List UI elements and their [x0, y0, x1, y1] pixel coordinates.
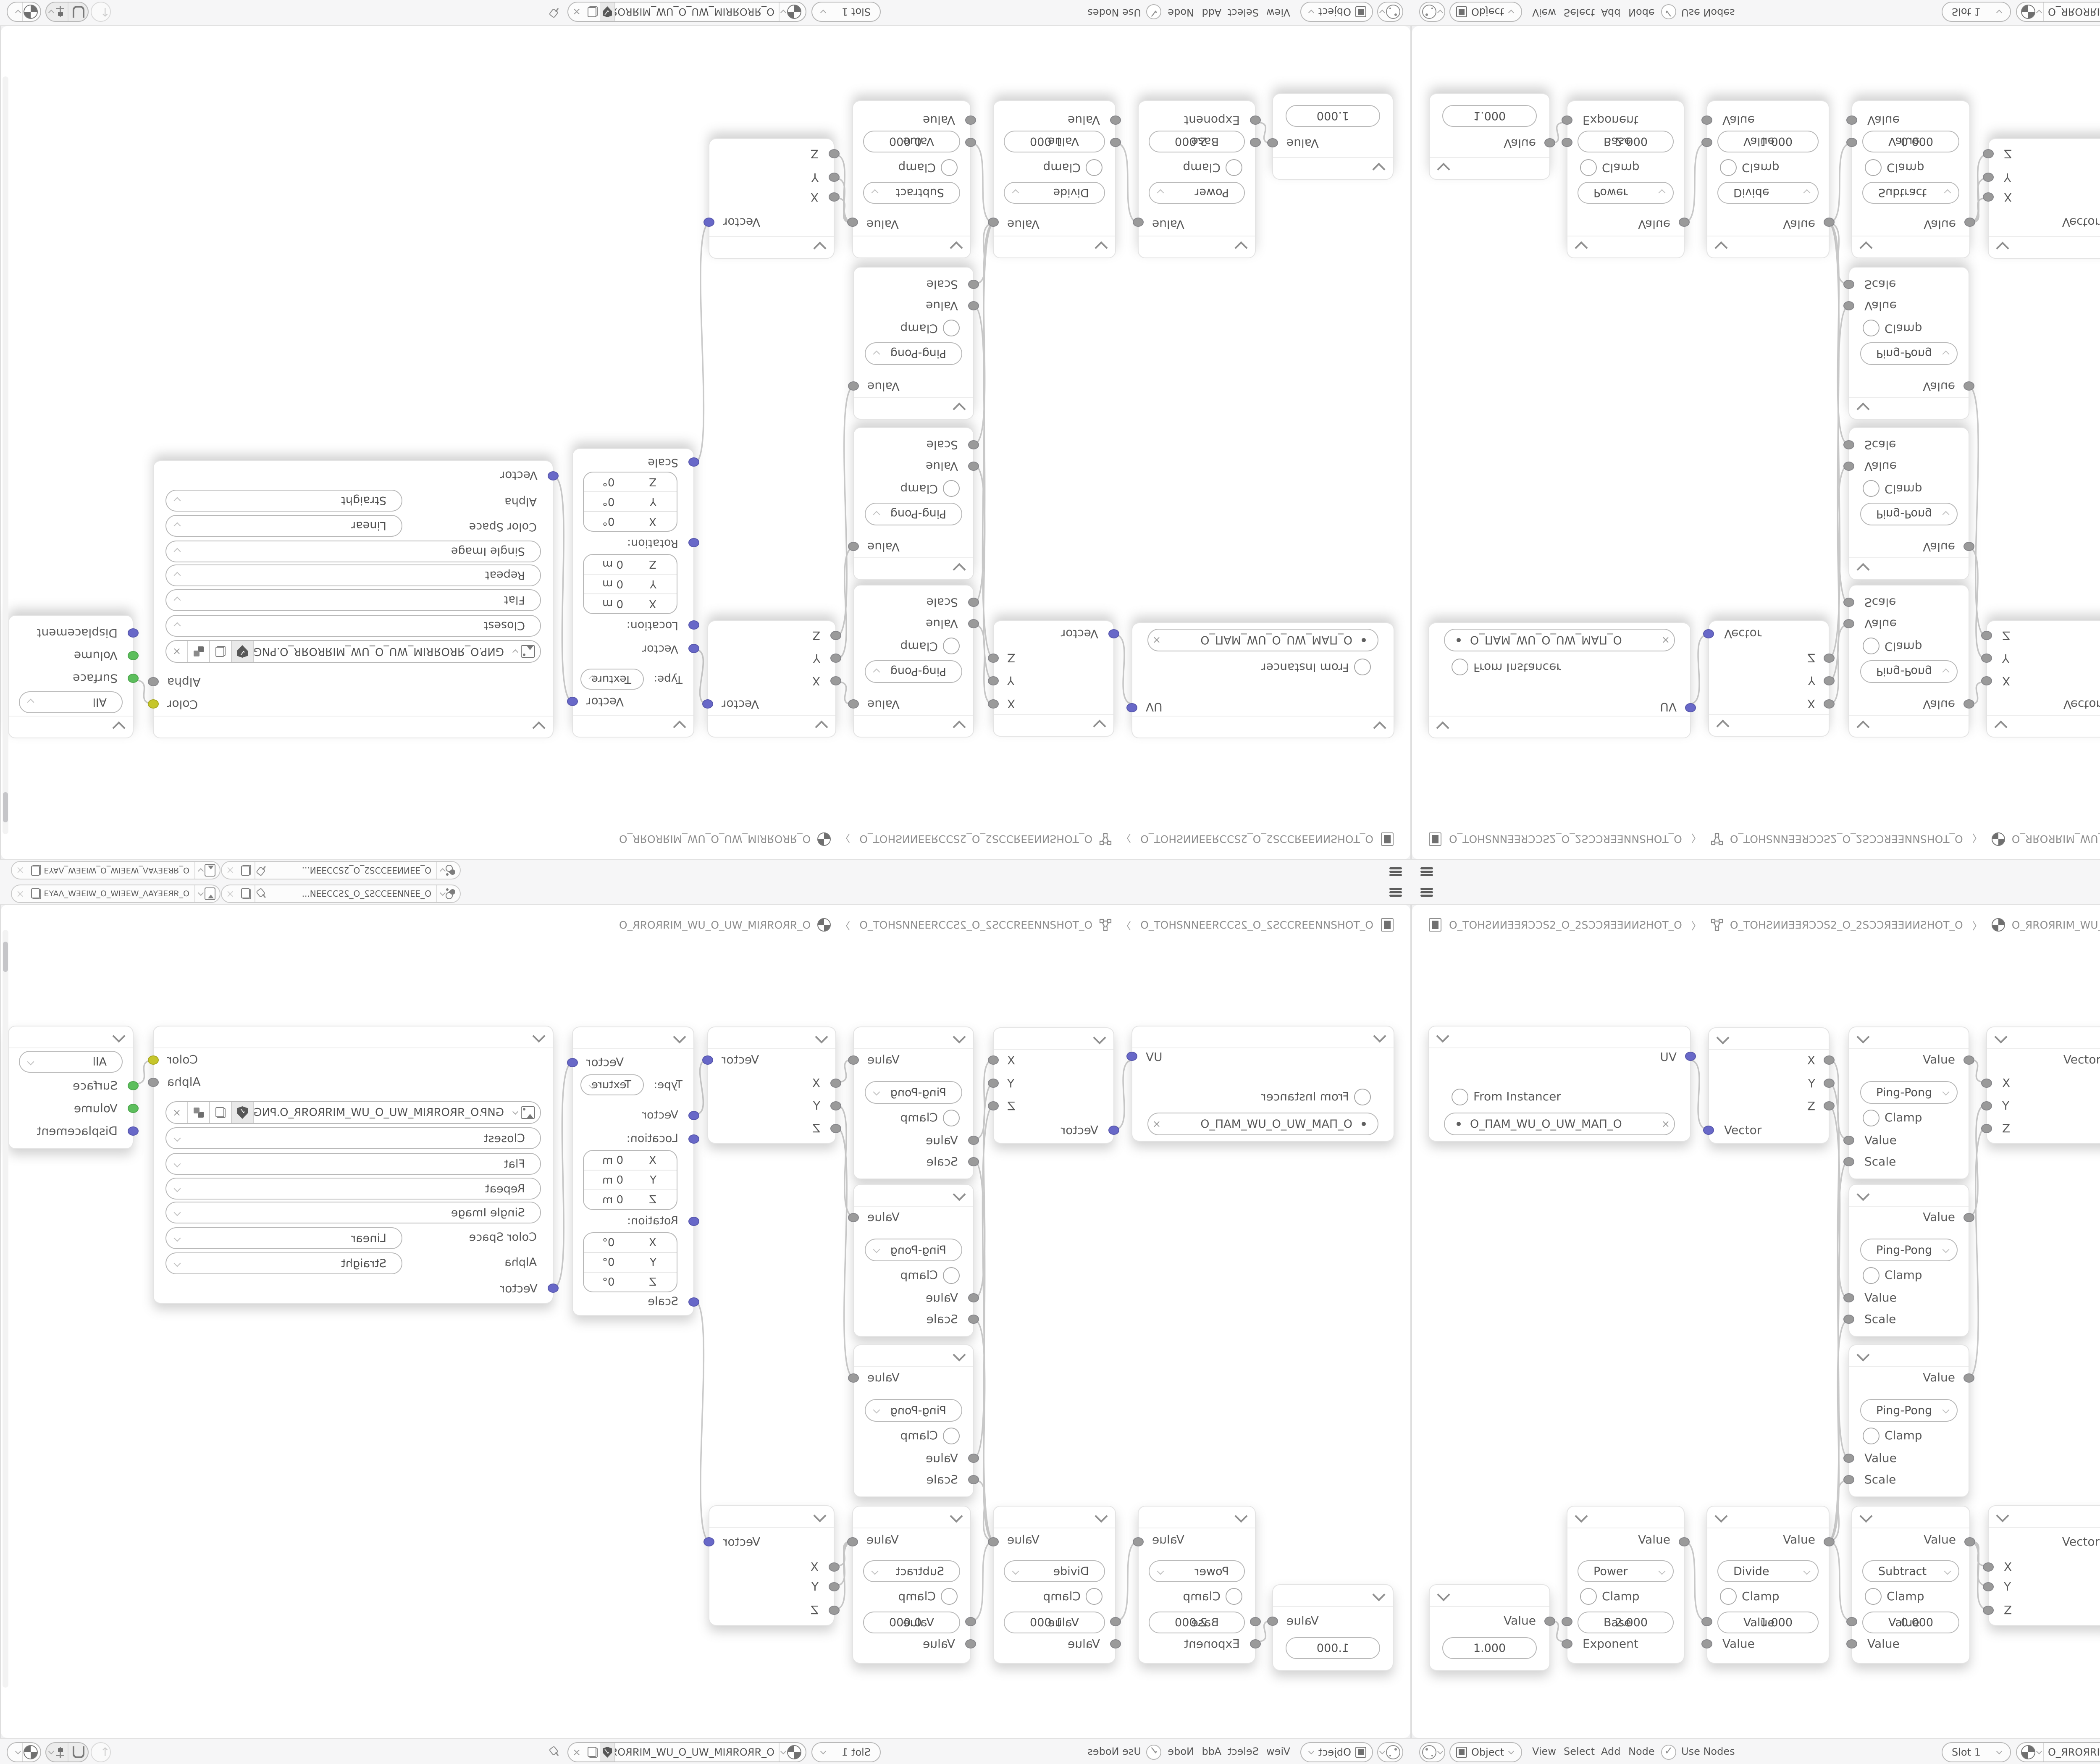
x-input-socket[interactable]: [829, 192, 840, 202]
math-subtract-node[interactable]: Value Subtract Clamp Value0.000 Value: [1851, 1506, 1970, 1664]
value-output-socket[interactable]: [848, 1373, 859, 1383]
menu-hamburger-icon[interactable]: [1420, 887, 1433, 899]
copy-icon[interactable]: [588, 6, 598, 17]
view-menu[interactable]: View: [1532, 3, 1556, 22]
rotation-fields[interactable]: X0° Y0° Z0°: [583, 472, 677, 532]
pin-icon[interactable]: [549, 0, 567, 19]
value-slider[interactable]: Value1.000: [1717, 131, 1819, 152]
math-pingpong-node-y[interactable]: Value Ping-Pong Clamp Value Scale: [853, 1184, 974, 1337]
value-input-socket[interactable]: [1110, 138, 1121, 147]
collapse-chevron-icon[interactable]: [1093, 1031, 1106, 1044]
node-header[interactable]: [708, 1027, 835, 1049]
material-name-field[interactable]: O_ЯROЯRIM_WU_O_UW_MIЯROЯR_O: [2045, 6, 2100, 18]
material-datablock-widget[interactable]: O_ЯROЯRIM_WU_O_UW_MIЯROЯR_O ×: [567, 2, 806, 22]
alpha-mode-dropdown[interactable]: Straight: [165, 490, 402, 512]
alpha-output-socket[interactable]: [148, 1078, 159, 1087]
node-header[interactable]: [1849, 557, 1969, 579]
value-output-socket[interactable]: [1267, 138, 1278, 147]
alpha-mode-dropdown[interactable]: Straight: [165, 1252, 402, 1274]
image-datablock-field[interactable]: GИP.O_ЯROЯRIM_WU_O_UW_MIЯROЯR_O.PNG ×: [165, 1101, 541, 1124]
vector-input-socket[interactable]: [1703, 1126, 1714, 1135]
rotation-input-socket[interactable]: [688, 538, 699, 547]
chevron-down-icon[interactable]: [780, 1748, 786, 1754]
arrow-up-icon[interactable]: ↑: [91, 2, 111, 22]
material-name-field[interactable]: O_ЯROЯRIM_WU_O_UW_MIЯROЯR_O: [615, 6, 778, 18]
uv-map-node[interactable]: UV From Instancer O_ПAM_WU_O_UW_MAП_O ×: [1131, 622, 1394, 738]
value-input-socket[interactable]: [1701, 138, 1712, 147]
view-menu[interactable]: View: [1266, 1742, 1290, 1761]
node-header[interactable]: [853, 1507, 970, 1528]
x-input-socket[interactable]: [1981, 676, 1992, 685]
node-header[interactable]: [994, 1028, 1113, 1050]
collapse-chevron-icon[interactable]: [953, 1348, 966, 1361]
operation-dropdown[interactable]: Ping-Pong: [865, 660, 962, 683]
y-input-socket[interactable]: [1983, 173, 1994, 182]
collapse-chevron-icon[interactable]: [950, 1509, 963, 1522]
math-pingpong-node-x[interactable]: Value Ping-Pong Clamp Value Scale: [1848, 1026, 1969, 1179]
close-icon[interactable]: ×: [1657, 634, 1674, 646]
scale-input-socket[interactable]: [968, 1315, 979, 1324]
uv-output-socket[interactable]: [1126, 1052, 1137, 1061]
node-header[interactable]: [994, 236, 1115, 257]
node-header[interactable]: [1139, 1507, 1255, 1528]
chevron-down-icon[interactable]: [440, 890, 446, 896]
node-header[interactable]: [154, 1026, 553, 1048]
collapse-chevron-icon[interactable]: [1994, 1030, 2007, 1043]
operation-dropdown[interactable]: Divide: [1004, 182, 1105, 204]
value-output-socket[interactable]: [1267, 1617, 1278, 1626]
chevron-down-icon[interactable]: [198, 890, 204, 896]
value-input-socket[interactable]: [1843, 462, 1854, 471]
combine-xyz-node[interactable]: Vector X Y Z: [1986, 1026, 2100, 1144]
location-fields[interactable]: X0 m Y0 m Z0 m: [583, 1150, 677, 1210]
add-menu[interactable]: Add: [1202, 3, 1221, 22]
value-output-socket[interactable]: [1679, 218, 1690, 227]
value-slider[interactable]: 1.000: [1286, 105, 1380, 127]
node-header[interactable]: [1709, 714, 1829, 736]
scale-input-socket[interactable]: [688, 457, 699, 467]
node-header[interactable]: [1430, 157, 1549, 179]
material-output-node[interactable]: All Surface Volume Displacement: [8, 615, 134, 738]
separate-xyz-node[interactable]: X Y Z Vector: [1708, 1027, 1830, 1144]
math-subtract-node[interactable]: Value Subtract Clamp Value0.000 Value: [852, 1506, 971, 1664]
node-header[interactable]: [1132, 1026, 1394, 1048]
x-output-socket[interactable]: [1824, 699, 1835, 709]
value-output-socket[interactable]: [848, 699, 859, 709]
value-output-socket[interactable]: [1824, 218, 1835, 227]
scale-input-socket[interactable]: [1843, 1157, 1854, 1166]
select-menu[interactable]: Select: [1564, 3, 1595, 22]
value-output-socket[interactable]: [1963, 1213, 1974, 1222]
snapping-group[interactable]: [45, 2, 89, 22]
close-icon[interactable]: ×: [166, 641, 188, 662]
combine-xyz-node[interactable]: Vector X Y Z: [1986, 620, 2100, 738]
value-output-socket[interactable]: [1679, 1537, 1690, 1546]
editor-type-selector[interactable]: [1419, 1742, 1445, 1762]
math-pingpong-node-x[interactable]: Value Ping-Pong Clamp Value Scale: [853, 585, 974, 738]
collapse-chevron-icon[interactable]: [1716, 1031, 1729, 1044]
operation-dropdown[interactable]: Ping-Pong: [865, 1239, 962, 1261]
operation-dropdown[interactable]: Ping-Pong: [865, 503, 962, 525]
node-header[interactable]: [1989, 1506, 2100, 1528]
fake-user-shield-icon[interactable]: [600, 1743, 615, 1761]
math-pingpong-node-z[interactable]: Value Ping-Pong Clamp Value Scale: [1848, 267, 1969, 420]
operation-dropdown[interactable]: Ping-Pong: [1860, 1081, 1958, 1104]
mapping-type-dropdown[interactable]: Texture: [580, 669, 644, 690]
clamp-checkbox[interactable]: [943, 320, 960, 336]
value-input-socket[interactable]: [1843, 301, 1854, 310]
operation-dropdown[interactable]: Power: [1578, 1560, 1674, 1582]
scale-input-socket[interactable]: [968, 440, 979, 449]
value-input-socket[interactable]: [1843, 1136, 1854, 1145]
math-divide-node[interactable]: Value Divide Clamp Value1.000 Value: [993, 100, 1116, 258]
vector-input-socket[interactable]: [688, 1111, 699, 1120]
node-header[interactable]: [708, 715, 835, 737]
chevron-down-icon[interactable]: [512, 649, 518, 655]
value2-input-socket[interactable]: [1846, 1639, 1857, 1648]
image-texture-node[interactable]: Color Alpha GИP.O_ЯROЯRIM_WU_O_UW_MIЯROЯ…: [153, 460, 554, 738]
base-input-socket[interactable]: [1562, 138, 1572, 147]
math-power-node[interactable]: Value Power Clamp Base2.000 Exponent: [1567, 1506, 1685, 1664]
combine-xyz-node-2[interactable]: Vector X Y Z: [1988, 138, 2100, 259]
node-header[interactable]: [1852, 236, 1969, 257]
value-input-socket[interactable]: [968, 462, 979, 471]
x-input-socket[interactable]: [829, 1562, 840, 1572]
node-menu[interactable]: Node: [1628, 3, 1655, 22]
clamp-checkbox[interactable]: [1720, 1588, 1737, 1605]
value-input-socket[interactable]: [1843, 1454, 1854, 1463]
interpolation-dropdown[interactable]: Closest: [165, 1127, 541, 1149]
node-header[interactable]: [1849, 1345, 1969, 1367]
collapse-chevron-icon[interactable]: [1436, 721, 1449, 734]
node-header[interactable]: [994, 1507, 1115, 1528]
collapse-chevron-icon[interactable]: [673, 1030, 686, 1043]
node-header[interactable]: [1139, 236, 1255, 257]
collapse-chevron-icon[interactable]: [1093, 719, 1106, 732]
value-output-socket[interactable]: [1963, 1373, 1974, 1383]
node-header[interactable]: [1567, 1507, 1684, 1528]
slot-dropdown[interactable]: Slot 1: [1942, 1742, 2011, 1762]
value-slider[interactable]: 1.000: [1286, 1637, 1380, 1659]
shader-node-editor[interactable]: O_TOHƧИИƎƎЯƆƆS2_O_2SƆƆЯƎƎИИƧHOT_O 〉 O_TO…: [1, 26, 1410, 859]
y-output-socket[interactable]: [988, 676, 999, 685]
node-header[interactable]: [854, 557, 973, 579]
collapse-chevron-icon[interactable]: [1234, 1509, 1247, 1522]
uv-map-name[interactable]: O_ПAM_WU_O_UW_MAП_O: [1470, 1118, 1657, 1131]
scale-input-socket[interactable]: [968, 1475, 979, 1484]
location-z-field[interactable]: Z0 m: [584, 1189, 677, 1209]
node-header[interactable]: [1430, 1585, 1549, 1607]
view-layer-name-field[interactable]: O_ЯRƎEYAΛ_WƎEIW_O_WIƎEW_ΛAYƎERЯ_O: [44, 866, 194, 875]
select-menu[interactable]: Select: [1228, 1742, 1259, 1761]
image-name[interactable]: GИP.O_ЯROЯRIM_WU_O_UW_MIЯROЯR_O.PNG: [254, 1106, 511, 1119]
displacement-input-socket[interactable]: [128, 628, 139, 638]
clamp-checkbox[interactable]: [1863, 1267, 1879, 1284]
view-menu[interactable]: View: [1532, 1742, 1556, 1761]
clamp-checkbox[interactable]: [941, 1588, 958, 1605]
shader-node-editor[interactable]: O_TOHƧИИƎƎЯƆƆS2_O_2SƆƆЯƎƎИИƧHOT_O 〉 O_TO…: [1412, 905, 2100, 1738]
separate-xyz-node[interactable]: X Y Z Vector: [993, 620, 1114, 737]
value-slider[interactable]: Value1.000: [1004, 131, 1105, 152]
z-input-socket[interactable]: [829, 1606, 840, 1615]
collapse-chevron-icon[interactable]: [532, 1029, 545, 1042]
material-output-node[interactable]: All Surface Volume Displacement: [8, 1026, 134, 1149]
slot-dropdown[interactable]: Slot 1: [811, 1742, 881, 1762]
uv-output-socket[interactable]: [1685, 1052, 1696, 1061]
collapse-chevron-icon[interactable]: [953, 563, 966, 576]
value-slider[interactable]: 1.000: [1442, 105, 1537, 127]
rotation-y-field[interactable]: Y0°: [584, 492, 677, 512]
separate-xyz-node[interactable]: X Y Z Vector: [993, 1027, 1114, 1144]
collapse-chevron-icon[interactable]: [953, 1188, 966, 1201]
target-dropdown[interactable]: All: [19, 691, 123, 713]
combine-xyz-node[interactable]: Vector X Y Z: [707, 1026, 836, 1144]
add-menu[interactable]: Add: [1601, 1742, 1620, 1761]
arrow-up-icon[interactable]: ↑: [91, 1742, 111, 1762]
proportional-edit-group[interactable]: [7, 1742, 41, 1762]
scene-name-field[interactable]: O_ƎƎИИƎƎƆƆS2_O_2SƆƆƎƎИ...: [268, 865, 436, 875]
node-header[interactable]: [1132, 716, 1394, 738]
material-datablock-widget[interactable]: O_ЯROЯRIM_WU_O_UW_MIЯROЯR_O ×: [2016, 1742, 2100, 1762]
math-pingpong-node-y[interactable]: Value Ping-Pong Clamp Value Scale: [1848, 427, 1969, 580]
clamp-checkbox[interactable]: [1863, 1428, 1879, 1444]
math-divide-node[interactable]: Value Divide Clamp Value1.000 Value: [993, 1506, 1116, 1664]
math-pingpong-node-z[interactable]: Value Ping-Pong Clamp Value Scale: [853, 1344, 974, 1497]
value-input-socket[interactable]: [968, 301, 979, 310]
collapse-chevron-icon[interactable]: [1856, 402, 1869, 415]
node-header[interactable]: [709, 236, 834, 258]
clamp-checkbox[interactable]: [1580, 159, 1597, 176]
operation-dropdown[interactable]: Ping-Pong: [1860, 342, 1958, 365]
shader-node-editor[interactable]: O_TOHƧИИƎƎЯƆƆS2_O_2SƆƆЯƎƎИИƧHOT_O 〉 O_TO…: [1, 905, 1410, 1738]
scale-input-socket[interactable]: [1843, 1475, 1854, 1484]
use-nodes-checkbox[interactable]: ✓: [1661, 4, 1676, 19]
interpolation-dropdown[interactable]: Closest: [165, 615, 541, 637]
rotation-x-field[interactable]: X0°: [584, 512, 677, 531]
node-header[interactable]: [1852, 1507, 1969, 1528]
value-output-socket[interactable]: [1824, 1537, 1835, 1546]
collapse-chevron-icon[interactable]: [1859, 1509, 1872, 1522]
math-pingpong-node-y[interactable]: Value Ping-Pong Clamp Value Scale: [853, 427, 974, 580]
mapping-node[interactable]: Vector Type: Texture Vector Location: X0…: [572, 1026, 694, 1316]
scrollbar-thumb[interactable]: [3, 792, 8, 822]
exponent-input-socket[interactable]: [1250, 1639, 1261, 1648]
base-slider[interactable]: Base2.000: [1149, 1612, 1245, 1633]
pin-icon[interactable]: [549, 1745, 567, 1764]
value-input-socket[interactable]: [1846, 138, 1857, 147]
magnet-icon[interactable]: [73, 1746, 84, 1758]
chevron-down-icon[interactable]: [2036, 10, 2042, 16]
editor-type-selector[interactable]: [1419, 2, 1445, 22]
pin-icon[interactable]: [255, 864, 269, 877]
value-output-socket[interactable]: [1133, 1537, 1144, 1546]
location-y-field[interactable]: Y0 m: [584, 1170, 677, 1189]
base-slider[interactable]: Base2.000: [1149, 131, 1245, 152]
x-input-socket[interactable]: [1981, 1079, 1992, 1088]
image-datablock-field[interactable]: GИP.O_ЯROЯRIM_WU_O_UW_MIЯROЯR_O.PNG ×: [165, 640, 541, 663]
operation-dropdown[interactable]: Power: [1149, 1560, 1245, 1582]
z-input-socket[interactable]: [1981, 1124, 1992, 1133]
node-header[interactable]: [573, 1027, 693, 1049]
clamp-checkbox[interactable]: [1865, 159, 1882, 176]
value-input-socket[interactable]: [965, 1617, 976, 1626]
collapse-chevron-icon[interactable]: [673, 720, 686, 733]
vector-input-socket[interactable]: [688, 644, 699, 653]
scale-input-socket[interactable]: [968, 280, 979, 289]
view-menu[interactable]: View: [1266, 3, 1290, 22]
z-output-socket[interactable]: [988, 1101, 999, 1110]
value-output-socket[interactable]: [1963, 1055, 1974, 1065]
value-output-socket[interactable]: [988, 1537, 999, 1546]
math-subtract-node[interactable]: Value Subtract Clamp Value0.000 Value: [852, 100, 971, 258]
editor-type-selector[interactable]: [1377, 2, 1403, 22]
collapse-chevron-icon[interactable]: [1859, 241, 1872, 254]
collapse-chevron-icon[interactable]: [532, 721, 545, 734]
displacement-input-socket[interactable]: [128, 1126, 139, 1136]
y-input-socket[interactable]: [1981, 654, 1992, 663]
value2-input-socket[interactable]: [1110, 115, 1121, 125]
menu-hamburger-icon[interactable]: [1389, 887, 1402, 899]
value2-input-socket[interactable]: [1110, 1639, 1121, 1648]
node-header[interactable]: [854, 715, 973, 737]
uv-map-node[interactable]: UV From Instancer O_ПAM_WU_O_UW_MAП_O ×: [1428, 1026, 1691, 1142]
collapse-chevron-icon[interactable]: [953, 720, 966, 733]
combine-xyz-node-2[interactable]: Vector X Y Z: [709, 1505, 835, 1626]
chevron-down-icon[interactable]: [48, 1748, 54, 1754]
image-name[interactable]: GИP.O_ЯROЯRIM_WU_O_UW_MIЯROЯR_O.PNG: [254, 645, 511, 658]
node-header[interactable]: [1709, 1028, 1829, 1050]
uv-map-name[interactable]: O_ПAM_WU_O_UW_MAП_O: [1165, 1118, 1352, 1131]
value-output-socket[interactable]: [1544, 138, 1555, 147]
collapse-chevron-icon[interactable]: [112, 1029, 125, 1042]
scale-input-socket[interactable]: [1843, 598, 1854, 607]
copy-icon[interactable]: [588, 1747, 598, 1758]
location-input-socket[interactable]: [688, 1134, 699, 1144]
collapse-chevron-icon[interactable]: [1856, 1348, 1869, 1361]
x-output-socket[interactable]: [988, 699, 999, 709]
value-output-socket[interactable]: [1964, 1537, 1975, 1546]
from-instancer-checkbox[interactable]: [1452, 659, 1468, 675]
slot-dropdown[interactable]: Slot 1: [1942, 2, 2011, 22]
math-pingpong-node-z[interactable]: Value Ping-Pong Clamp Value Scale: [1848, 1344, 1969, 1497]
color-output-socket[interactable]: [148, 1055, 159, 1065]
value-slider[interactable]: Value1.000: [1717, 1612, 1819, 1633]
x-input-socket[interactable]: [1983, 192, 1994, 202]
copy-icon[interactable]: [31, 865, 41, 876]
value-node[interactable]: Value 1.000: [1272, 1584, 1394, 1671]
close-icon[interactable]: ×: [568, 6, 585, 18]
collapse-chevron-icon[interactable]: [1436, 1029, 1449, 1042]
value-input-socket[interactable]: [965, 138, 976, 147]
node-header[interactable]: [1429, 716, 1690, 738]
node-header[interactable]: [1273, 1585, 1393, 1607]
fake-user-shield-icon[interactable]: [232, 1102, 254, 1123]
close-icon[interactable]: ×: [222, 888, 239, 900]
uv-map-name[interactable]: O_ПAM_WU_O_UW_MAП_O: [1470, 634, 1657, 647]
y-input-socket[interactable]: [829, 1582, 840, 1591]
node-header[interactable]: [1849, 1185, 1969, 1207]
mapping-node[interactable]: Vector Type: Texture Vector Location: X0…: [572, 448, 694, 738]
copy-icon[interactable]: [210, 641, 232, 662]
material-name-field[interactable]: O_ЯROЯRIM_WU_O_UW_MIЯROЯR_O: [615, 1746, 778, 1758]
x-input-socket[interactable]: [830, 676, 841, 685]
base-input-socket[interactable]: [1250, 1617, 1261, 1626]
clamp-checkbox[interactable]: [943, 480, 960, 497]
base-slider[interactable]: Base2.000: [1578, 1612, 1674, 1633]
slot-dropdown[interactable]: Slot 1: [811, 2, 881, 22]
color-space-dropdown[interactable]: Linear: [165, 515, 402, 537]
node-header[interactable]: [1707, 236, 1829, 257]
value-output-socket[interactable]: [1963, 699, 1974, 709]
collapse-chevron-icon[interactable]: [1856, 1188, 1869, 1201]
chevron-down-icon[interactable]: [48, 10, 54, 16]
uv-map-field[interactable]: O_ПAM_WU_O_UW_MAП_O ×: [1147, 629, 1378, 651]
y-input-socket[interactable]: [1983, 1582, 1994, 1591]
collapse-chevron-icon[interactable]: [1372, 163, 1385, 176]
value-output-socket[interactable]: [847, 1537, 858, 1546]
value-slider[interactable]: Value0.000: [863, 131, 960, 152]
volume-input-socket[interactable]: [128, 651, 139, 660]
value-output-socket[interactable]: [848, 542, 859, 551]
value2-input-socket[interactable]: [1701, 1639, 1712, 1648]
volume-input-socket[interactable]: [128, 1104, 139, 1113]
clamp-checkbox[interactable]: [1720, 159, 1737, 176]
operation-dropdown[interactable]: Ping-Pong: [1860, 1399, 1958, 1422]
editor-type-selector[interactable]: [1377, 1742, 1403, 1762]
collapse-chevron-icon[interactable]: [1437, 1588, 1450, 1601]
value-input-socket[interactable]: [1110, 1617, 1121, 1626]
collapse-chevron-icon[interactable]: [953, 1030, 966, 1043]
surface-input-socket[interactable]: [128, 1081, 139, 1090]
material-datablock-widget[interactable]: O_ЯROЯRIM_WU_O_UW_MIЯROЯR_O ×: [2016, 2, 2100, 22]
value2-input-socket[interactable]: [1846, 115, 1857, 125]
z-input-socket[interactable]: [829, 149, 840, 158]
math-power-node[interactable]: Value Power Clamp Base2.000 Exponent: [1138, 100, 1256, 258]
collapse-chevron-icon[interactable]: [1234, 241, 1247, 254]
view-layer-selector[interactable]: O_ЯRƎEYAΛ_WƎEIW_O_WIƎEW_ΛAYƎERЯ_O ×: [11, 885, 220, 903]
node-header[interactable]: [1429, 1026, 1690, 1048]
chevron-down-icon[interactable]: [512, 1109, 518, 1115]
collapse-chevron-icon[interactable]: [1372, 1588, 1385, 1601]
select-menu[interactable]: Select: [1564, 1742, 1595, 1761]
collapse-chevron-icon[interactable]: [1856, 563, 1869, 576]
clamp-checkbox[interactable]: [943, 1110, 960, 1126]
node-header[interactable]: [709, 1506, 834, 1528]
node-header[interactable]: [573, 715, 693, 737]
vector-output-socket[interactable]: [703, 218, 714, 227]
material-name-field[interactable]: O_ЯROЯRIM_WU_O_UW_MIЯROЯR_O: [2045, 1746, 2100, 1758]
collapse-chevron-icon[interactable]: [112, 721, 125, 734]
clamp-checkbox[interactable]: [943, 1267, 960, 1284]
node-header[interactable]: [1987, 715, 2100, 737]
source-dropdown[interactable]: Single Image: [165, 541, 541, 562]
chevron-down-icon[interactable]: [2036, 1748, 2042, 1754]
y-input-socket[interactable]: [1981, 1101, 1992, 1110]
uv-map-node[interactable]: UV From Instancer O_ПAM_WU_O_UW_MAП_O ×: [1131, 1026, 1394, 1142]
collapse-chevron-icon[interactable]: [1575, 1509, 1588, 1522]
value-slider[interactable]: Value0.000: [863, 1612, 960, 1633]
operation-dropdown[interactable]: Ping-Pong: [1860, 503, 1958, 525]
value-input-socket[interactable]: [1701, 1617, 1712, 1626]
pin-icon[interactable]: [255, 887, 269, 901]
add-menu[interactable]: Add: [1202, 1742, 1221, 1761]
x-input-socket[interactable]: [830, 1079, 841, 1088]
node-header[interactable]: [854, 1185, 973, 1207]
y-output-socket[interactable]: [988, 1079, 999, 1088]
vector-output-socket[interactable]: [567, 697, 578, 706]
surface-input-socket[interactable]: [128, 674, 139, 683]
fake-user-shield-icon[interactable]: [600, 3, 615, 21]
